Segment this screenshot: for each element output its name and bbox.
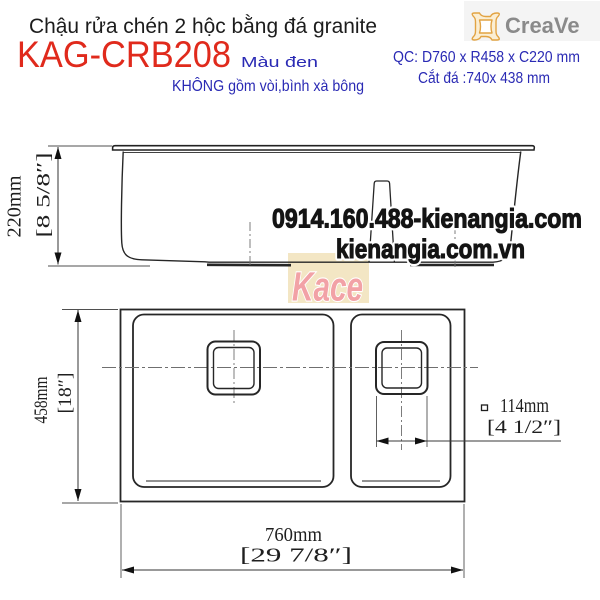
svg-text:CreaVe: CreaVe — [505, 13, 580, 38]
svg-text:760mm: 760mm — [265, 524, 322, 546]
svg-text:KAG-CRB208: KAG-CRB208 — [17, 34, 231, 75]
svg-text:[4 1/2″]: [4 1/2″] — [487, 417, 561, 438]
svg-text:[29 7/8″]: [29 7/8″] — [240, 546, 352, 567]
svg-text:[8 5/8″]: [8 5/8″] — [34, 153, 55, 238]
svg-text:Màu đen: Màu đen — [241, 54, 318, 71]
svg-text:220mm: 220mm — [4, 175, 26, 237]
svg-text:kienangia.com.vn: kienangia.com.vn — [336, 234, 525, 264]
svg-text:Cắt đá :740x 438 mm: Cắt đá :740x 438 mm — [418, 70, 550, 87]
svg-text:Kace: Kace — [292, 264, 363, 310]
svg-text:[18″]: [18″] — [56, 373, 76, 414]
svg-text:114mm: 114mm — [500, 395, 549, 417]
svg-text:0914.160.488-kienangia.com: 0914.160.488-kienangia.com — [272, 204, 582, 234]
svg-text:458mm: 458mm — [31, 376, 52, 423]
svg-text:QC: D760 x R458 x C220 mm: QC: D760 x R458 x C220 mm — [393, 49, 580, 66]
svg-text:KHÔNG gồm vòi,bình xà bông: KHÔNG gồm vòi,bình xà bông — [172, 76, 364, 95]
